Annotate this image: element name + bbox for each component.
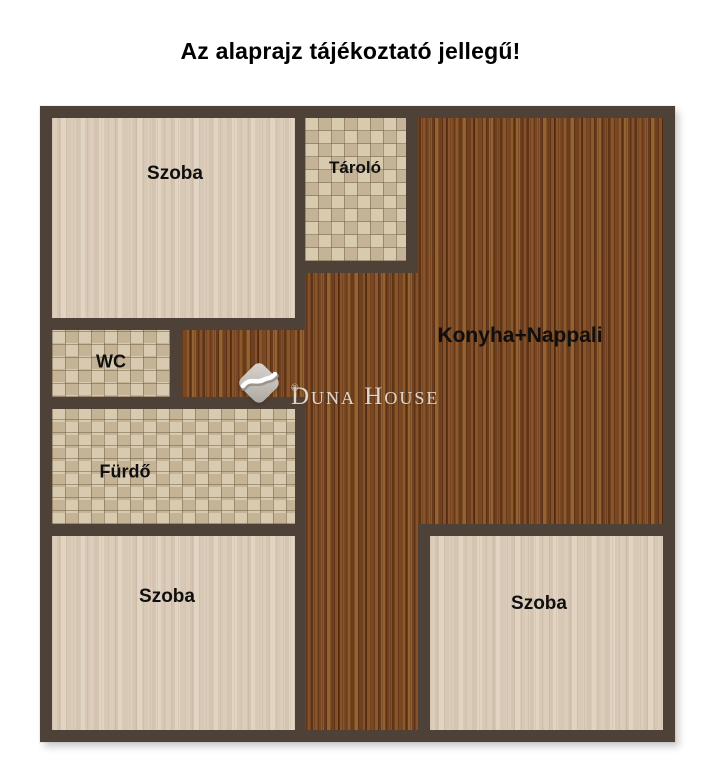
wall-furdo-szoba-bl-right — [295, 409, 305, 742]
room-label-szoba-bottom-left: Szoba — [139, 586, 195, 608]
room-floor-furdo — [52, 409, 295, 524]
room-label-furdo: Fürdő — [100, 462, 151, 483]
wall-wc-right — [170, 318, 182, 409]
wall-tarolo-right — [406, 106, 418, 273]
room-label-szoba-top-left: Szoba — [147, 163, 203, 185]
room-label-szoba-bottom-right: Szoba — [511, 593, 567, 615]
wall-outer-left — [40, 106, 52, 742]
wall-tarolo-bottom — [295, 261, 418, 273]
duna-house-logo-icon — [236, 360, 282, 406]
room-floor-tarolo — [305, 118, 406, 261]
wall-szoba-br-top — [418, 524, 675, 536]
wall-outer-bottom — [40, 730, 675, 742]
room-label-tarolo: Tároló — [329, 158, 381, 178]
wall-outer-right — [663, 106, 675, 742]
wall-szoba-tl-right — [295, 106, 305, 330]
registered-trademark-symbol: ® — [291, 383, 299, 394]
room-floor-szoba-top-left — [52, 118, 295, 318]
room-floor-szoba-bottom-right — [430, 536, 663, 730]
room-floor-szoba-bottom-left — [52, 536, 295, 730]
duna-house-watermark: Duna House® — [236, 358, 291, 408]
room-label-wc: WC — [96, 352, 126, 373]
page-title: Az alaprajz tájékoztató jellegű! — [0, 38, 701, 65]
wall-szoba-br-left — [418, 524, 430, 742]
wall-outer-top — [40, 106, 675, 118]
room-label-konyha-nappali: Konyha+Nappali — [437, 324, 602, 348]
wave-icon — [237, 361, 281, 405]
wall-furdo-bottom — [40, 524, 305, 536]
page: Az alaprajz tájékoztató jellegű! Szoba T… — [0, 0, 701, 768]
floor-plan: Szoba Tároló Konyha+Nappali WC Fürdő Szo… — [40, 106, 675, 742]
